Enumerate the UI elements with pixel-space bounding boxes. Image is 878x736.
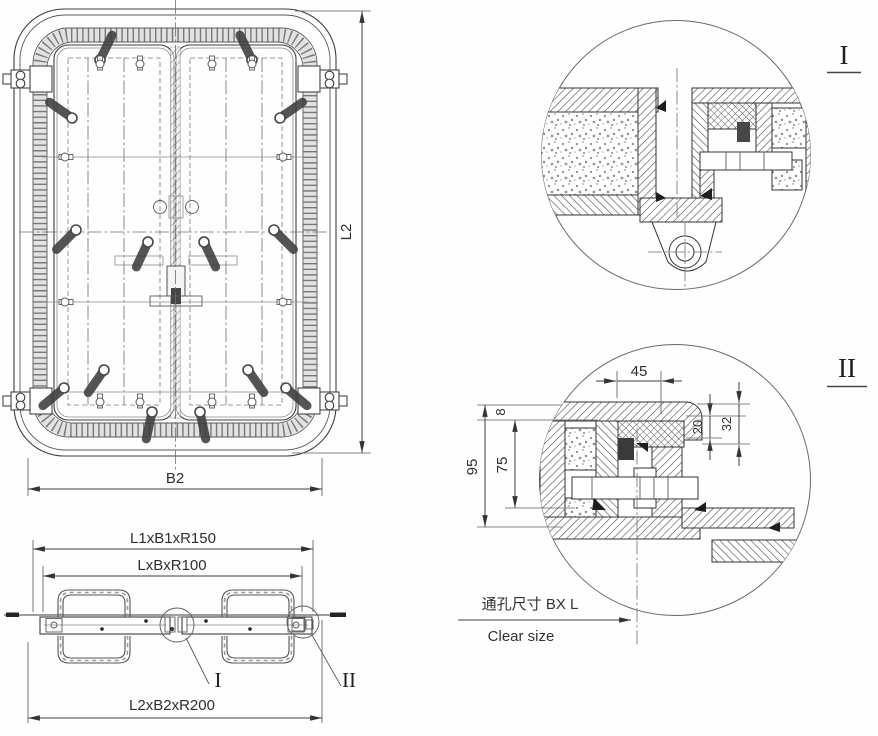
detail1-section [538, 68, 822, 288]
handle-tube [58, 590, 130, 617]
hinge-top-left [3, 66, 52, 92]
dim-clear: LxBxR100 [43, 557, 302, 612]
clear-size-callout: 通孔尺寸 BX L Clear size [458, 596, 631, 645]
technical-drawing-svg: L2 B2 L1xB1xR150 LxBxR100 [0, 0, 878, 736]
dim-B2-label: B2 [166, 470, 184, 487]
dim-outer-label: L2xB2xR200 [129, 697, 215, 714]
dim-outer: L2xB2xR200 [28, 620, 322, 723]
dim-clear-label: LxBxR100 [137, 557, 206, 574]
front-view: L2 B2 [3, 0, 371, 496]
dim-95-label: 95 [464, 459, 481, 476]
door-leaves [20, 45, 330, 420]
dim-L2-label: L2 [338, 224, 355, 241]
dim-20-label: 20 [690, 420, 705, 434]
detail-view-2: II 45 8 95 75 [458, 345, 867, 646]
detail2-title: II [827, 353, 867, 387]
dim-B2: B2 [28, 458, 322, 496]
dim-frame-label: L1xB1xR150 [130, 530, 216, 547]
clear-size-label-en: Clear size [488, 628, 555, 645]
detail2-section [540, 402, 820, 562]
dim-75-label: 75 [494, 457, 511, 474]
dim-32-label: 32 [719, 417, 734, 431]
clear-size-label-zh: 通孔尺寸 BX L [482, 596, 579, 613]
handle-tube [222, 636, 294, 663]
detail2-title-label: II [838, 353, 856, 383]
handle-tube [58, 636, 130, 663]
detail1-marker-label: I [215, 668, 222, 692]
hinge-top-right [298, 66, 347, 92]
drawing-sheet: L2 B2 L1xB1xR150 LxBxR100 [0, 0, 878, 736]
dim-8-label: 8 [493, 408, 508, 415]
detail1-title-label: I [840, 40, 849, 70]
detail1-title: I [827, 40, 861, 73]
handle-tube [222, 590, 294, 617]
dim-45-label: 45 [631, 363, 648, 380]
plan-structure [4, 590, 346, 663]
detail-view-1: I [538, 21, 861, 290]
plan-view: L1xB1xR150 LxBxR100 [4, 530, 356, 723]
detail2-marker-label: II [342, 668, 356, 692]
